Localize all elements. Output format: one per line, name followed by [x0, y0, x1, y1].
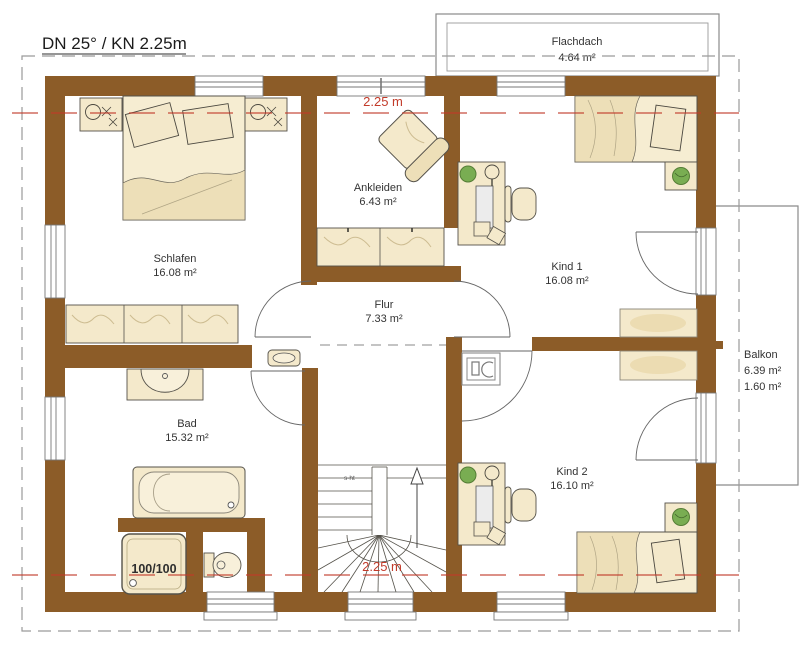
nightstand-left [80, 98, 122, 131]
svg-text:Kind 2: Kind 2 [556, 466, 587, 478]
knee-wall-dim-bottom: 2.25 m [362, 559, 402, 574]
plant-icon [460, 467, 476, 483]
svg-text:Ankleiden: Ankleiden [354, 182, 402, 194]
pillow [650, 105, 686, 151]
chair-kind2 [505, 487, 536, 523]
svg-text:16.08 m²: 16.08 m² [153, 267, 197, 279]
nightstand-right [245, 98, 287, 131]
balkon-label: Balkon 6.39 m² 1.60 m² [744, 349, 782, 393]
window-kind1-top [497, 76, 565, 96]
chair-kind1 [505, 186, 536, 222]
svg-text:16.10 m²: 16.10 m² [550, 480, 594, 492]
wall-kind1-kind2 [532, 337, 716, 351]
floorplan-page: DN 25° / KN 2.25m Flachdach 4.64 m² [0, 0, 800, 662]
flachdach-label: Flachdach [552, 36, 603, 48]
plan-title: DN 25° / KN 2.25m [42, 34, 187, 53]
svg-text:Balkon: Balkon [744, 349, 778, 361]
wall-bath-niche-right [247, 518, 265, 592]
side-table-kind1 [665, 162, 697, 190]
wall-shower-wc [186, 532, 203, 592]
window-schlafen-left [45, 225, 65, 298]
dresser-kind2 [620, 351, 697, 380]
wall-left [45, 76, 65, 612]
svg-text:Kind 1: Kind 1 [551, 261, 582, 273]
dresser-kind1 [620, 309, 697, 337]
stair-spine [372, 467, 387, 535]
hand-sink [268, 350, 300, 366]
bed-kind2 [577, 532, 697, 593]
wardrobe-schlafen [66, 305, 238, 343]
desk-kind1 [458, 162, 506, 245]
blanket [577, 532, 640, 593]
window-schlafen-top [195, 76, 263, 96]
window-kind2-bottom [494, 592, 568, 620]
wardrobe-ankleiden [317, 228, 444, 266]
pillow [651, 539, 684, 583]
svg-text:Flur: Flur [375, 299, 394, 311]
shower: 100/100 [122, 534, 186, 594]
svg-text:Bad: Bad [177, 418, 197, 430]
wall-ankleiden-flur [301, 266, 461, 282]
drain [228, 502, 234, 508]
side-table-kind2 [665, 503, 697, 532]
shaft-symbol [462, 353, 500, 385]
svg-text:7.33 m²: 7.33 m² [365, 313, 403, 325]
wall-bath-niche-top [118, 518, 252, 532]
wall-schlafen-ankleiden [301, 96, 317, 285]
window-bad-left [45, 397, 65, 460]
desk-kind2 [458, 463, 506, 545]
window-bad-bottom [204, 592, 277, 620]
stair-note-label: s-ht [344, 475, 355, 482]
svg-text:Schlafen: Schlafen [154, 253, 197, 265]
window-ankleiden-top [337, 76, 425, 96]
shower-size-label: 100/100 [131, 562, 176, 576]
svg-text:6.43 m²: 6.43 m² [359, 196, 397, 208]
bed-kind1 [575, 96, 697, 162]
svg-text:1.60 m²: 1.60 m² [744, 381, 782, 393]
svg-text:15.32 m²: 15.32 m² [165, 432, 209, 444]
wall-schlafen-bad [65, 345, 252, 368]
flachdach-area: 4.64 m² [558, 52, 596, 64]
plant-icon [673, 509, 690, 526]
wall-balkon-divider-stub [716, 341, 723, 349]
svg-text:16.08 m²: 16.08 m² [545, 275, 589, 287]
plant-icon [673, 168, 690, 185]
floor-plan: DN 25° / KN 2.25m Flachdach 4.64 m² [0, 0, 800, 662]
toilet [204, 553, 241, 578]
drain [130, 580, 137, 587]
plant-icon [460, 166, 476, 182]
wall-bad-stairs [302, 368, 318, 592]
svg-text:6.39 m²: 6.39 m² [744, 365, 782, 377]
pillow-right [183, 104, 234, 145]
vanity-basin [127, 369, 203, 400]
flachdach-box: Flachdach 4.64 m² [436, 14, 719, 76]
bathtub [133, 467, 245, 518]
double-bed [123, 96, 245, 220]
blanket [575, 96, 640, 162]
window-stairs-bottom [345, 592, 416, 620]
balkon-outline [716, 206, 798, 485]
knee-wall-dim-top: 2.25 m [363, 94, 403, 109]
